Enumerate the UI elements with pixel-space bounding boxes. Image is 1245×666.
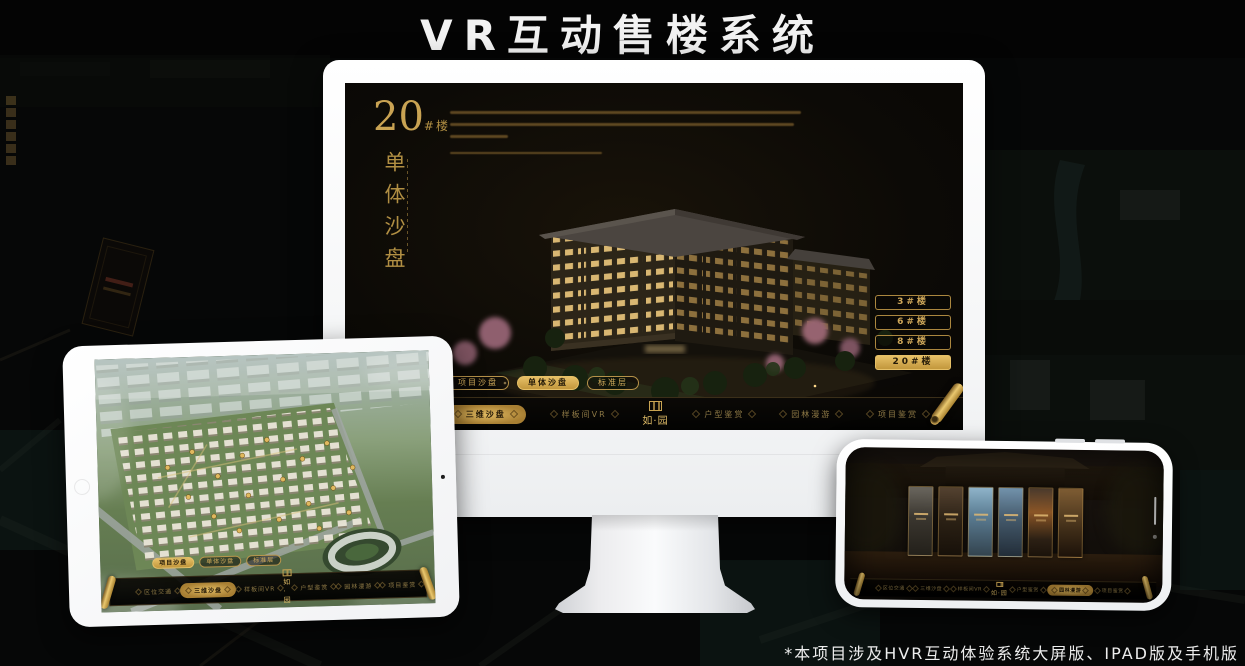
nav-item[interactable]: 户型鉴赏 — [693, 409, 755, 420]
brand-logo-text: 如·园 — [642, 412, 668, 427]
footnote: *本项目涉及HVR互动体验系统大屏版、IPAD版及手机版 — [784, 640, 1239, 664]
seal-icon — [996, 582, 1003, 587]
nav-item[interactable]: 户型鉴赏 — [292, 581, 336, 591]
description-lines — [450, 111, 812, 164]
tablet-mode-pill-active[interactable]: 项目沙盘 — [152, 557, 194, 569]
seal-icon — [649, 401, 662, 411]
nav-item-active[interactable]: 三维沙盘 — [446, 405, 526, 424]
nav-item[interactable]: 园林漫游 — [780, 409, 842, 420]
building-headline-suffix: #楼 — [424, 119, 450, 133]
mode-pill-active[interactable]: 单体沙盘 — [517, 376, 579, 390]
gallery-panel[interactable] — [1028, 487, 1054, 557]
scroll-indicator — [1154, 497, 1157, 525]
mode-pills: 项目沙盘 单体沙盘 标准层 — [447, 376, 639, 390]
mode-pill[interactable]: 标准层 — [587, 376, 639, 390]
nav-item-active[interactable]: 三维沙盘 — [180, 581, 236, 598]
gallery-panels — [908, 486, 1084, 558]
brand-logo: 如·园 — [991, 582, 1008, 597]
phone-mockup: 区位交通 三维沙盘 样板间VR 如·园 户型鉴赏 园林漫游 项目鉴赏 — [835, 439, 1173, 611]
floor-button[interactable]: 8#楼 — [875, 335, 951, 350]
nav-item[interactable]: 区位交通 — [136, 586, 180, 596]
gate-silhouette — [919, 451, 1089, 489]
mode-pill[interactable]: 项目沙盘 — [447, 376, 509, 390]
floor-selector: 3#楼 6#楼 8#楼 20#楼 — [875, 295, 951, 370]
nav-item-active[interactable]: 园林漫游 — [1048, 585, 1093, 597]
nav-item[interactable]: 项目鉴赏 — [867, 409, 929, 420]
seal-icon — [283, 569, 292, 576]
nav-item[interactable]: 项目鉴赏 — [1095, 587, 1130, 594]
brand-logo: 如·园 — [642, 401, 668, 427]
nav-item[interactable]: 三维沙盘 — [914, 585, 949, 592]
phone-screen: 区位交通 三维沙盘 样板间VR 如·园 户型鉴赏 园林漫游 项目鉴赏 — [844, 447, 1164, 603]
nav-item[interactable]: 区位交通 — [876, 584, 911, 591]
brand-logo-text: 如·园 — [991, 588, 1008, 597]
building-headline-number: 20#楼 — [373, 97, 450, 137]
tablet-mockup: 项目沙盘 单体沙盘 标准层 区位交通 三维沙盘 样板间VR 如·园 户型鉴赏 园… — [62, 336, 460, 628]
phone-bottom-nav: 区位交通 三维沙盘 样板间VR 如·园 户型鉴赏 园林漫游 项目鉴赏 — [850, 578, 1156, 600]
nav-item[interactable]: 样板间VR — [551, 409, 618, 420]
headline-side-ornament — [407, 159, 408, 254]
phone-side-button — [1095, 439, 1125, 443]
page-title: VR互动售楼系统 — [0, 2, 1245, 63]
floor-button-active[interactable]: 20#楼 — [875, 355, 951, 370]
gallery-panel[interactable] — [998, 487, 1024, 557]
foliage-left — [844, 465, 902, 556]
headline-vertical-subtitle: 单体沙盘 — [379, 151, 409, 279]
nav-item[interactable]: 户型鉴赏 — [1010, 586, 1045, 593]
nav-item[interactable]: 样板间VR — [951, 585, 988, 592]
brand-logo-text: 如·园 — [283, 577, 293, 605]
nav-item[interactable]: 项目鉴赏 — [380, 579, 424, 589]
floor-button[interactable]: 3#楼 — [875, 295, 951, 310]
floor-button[interactable]: 6#楼 — [875, 315, 951, 330]
nav-item[interactable]: 样板间VR — [236, 583, 284, 593]
gallery-panel[interactable] — [938, 486, 964, 556]
tablet-mode-pill[interactable]: 单体沙盘 — [199, 556, 241, 568]
home-button[interactable] — [74, 478, 90, 494]
tablet-screen: 项目沙盘 单体沙盘 标准层 区位交通 三维沙盘 样板间VR 如·园 户型鉴赏 园… — [95, 350, 436, 612]
nav-item[interactable]: 园林漫游 — [336, 580, 380, 590]
tablet-mode-pill[interactable]: 标准层 — [246, 554, 281, 566]
stage: VR互动售楼系统 — [0, 0, 1245, 666]
phone-side-button — [1055, 439, 1085, 443]
camera-icon — [441, 474, 445, 478]
gallery-panel[interactable] — [1058, 488, 1084, 558]
gallery-panel[interactable] — [968, 487, 994, 557]
gallery-panel[interactable] — [908, 486, 934, 556]
camera-icon — [1153, 535, 1157, 539]
